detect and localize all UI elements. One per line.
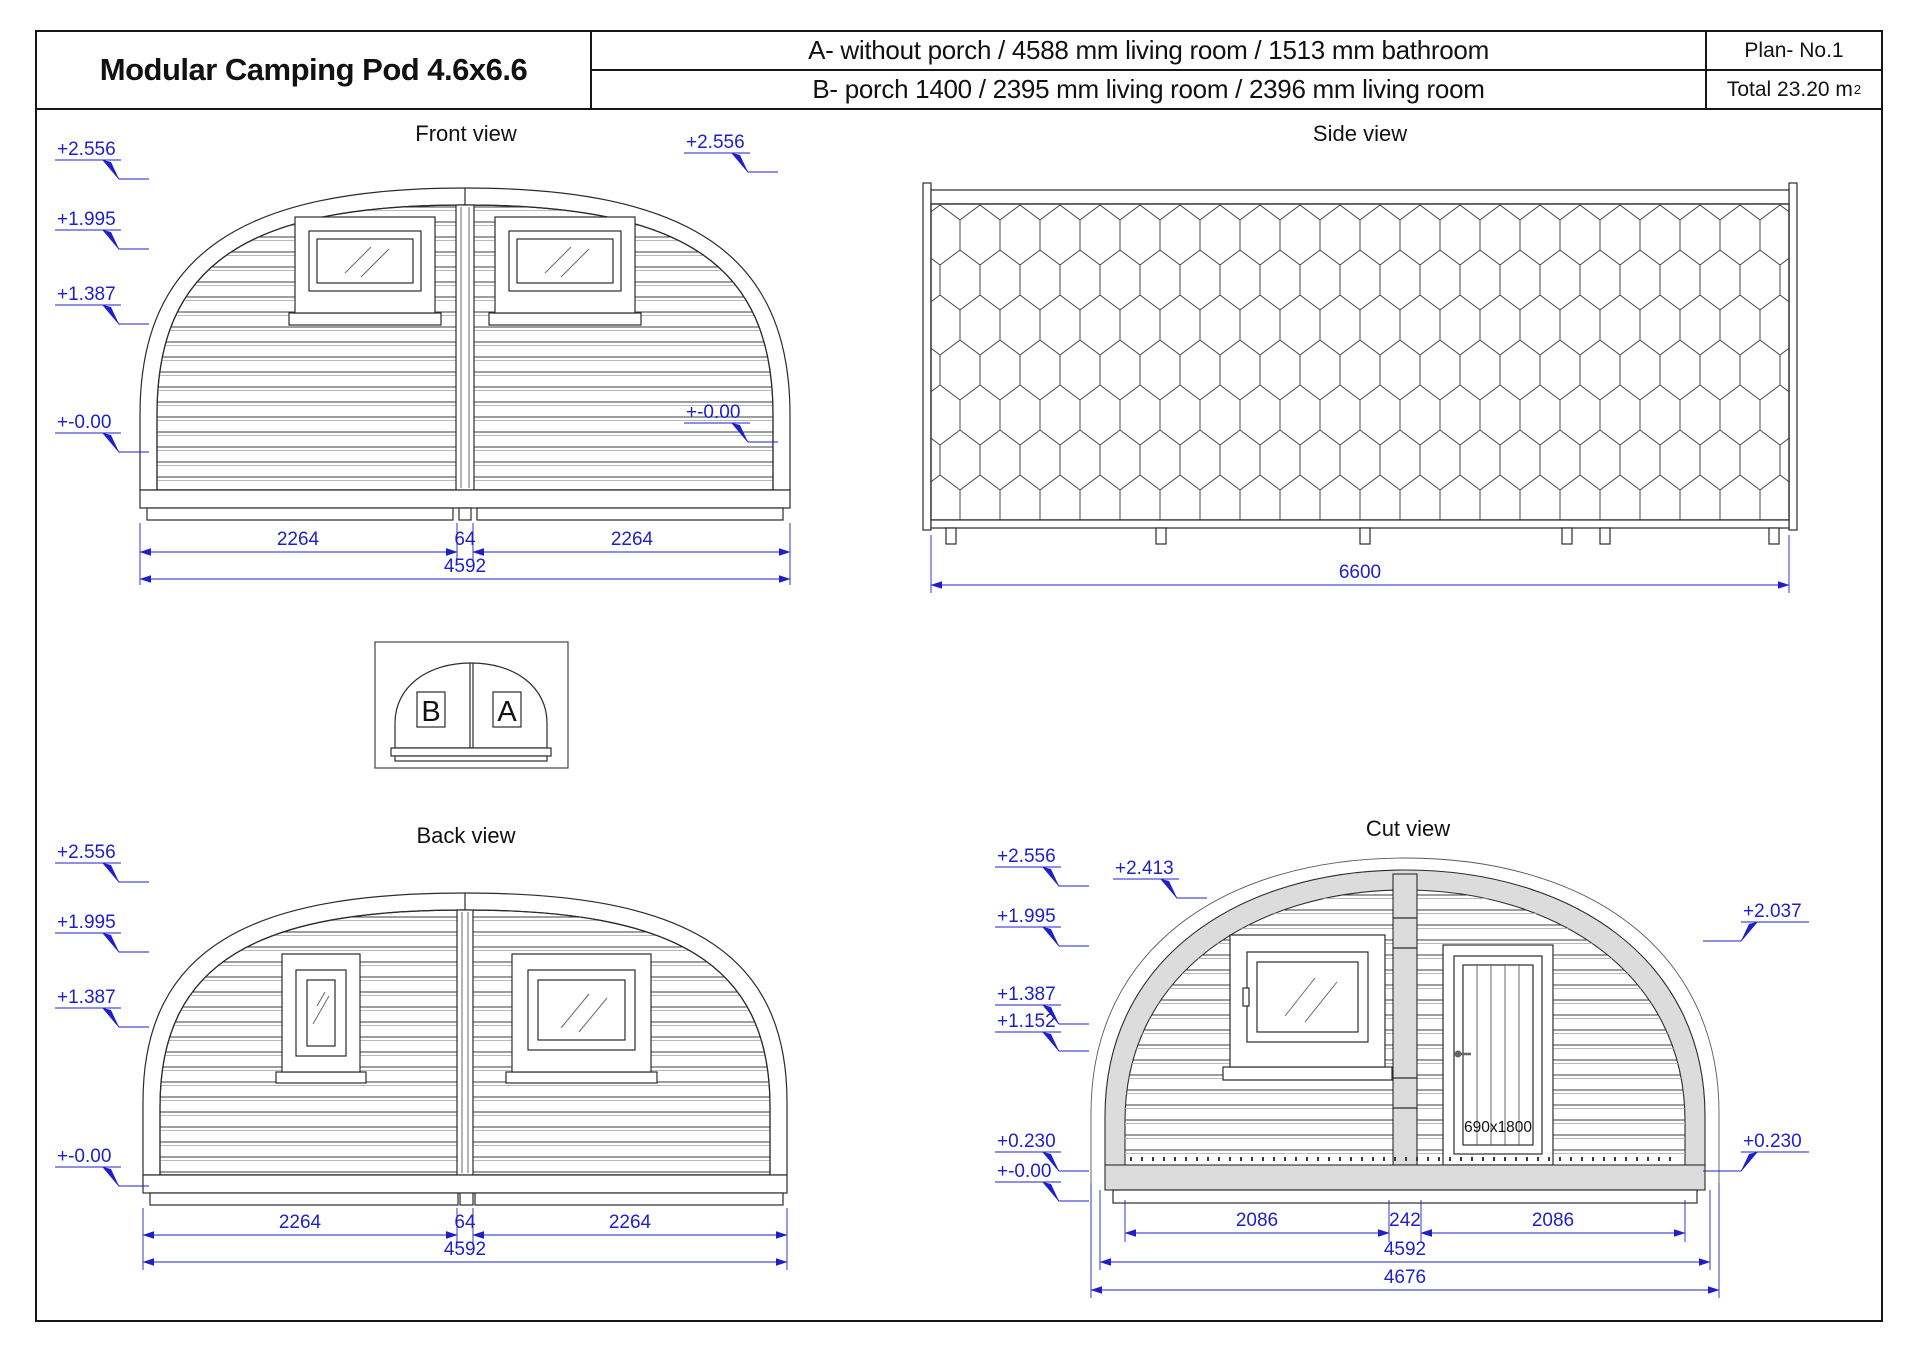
svg-text:+1.995: +1.995 [997,906,1056,927]
dim-label: 2086 [1236,1210,1278,1231]
svg-text:+2.556: +2.556 [997,846,1056,867]
elevation-marker: +2.037 [1703,901,1809,941]
back-skid-center [460,1193,473,1205]
total-area-sup: 2 [1854,82,1861,97]
dim-label: 4592 [444,1239,486,1260]
svg-text:+1.995: +1.995 [57,912,116,933]
front-skid-center [459,508,471,520]
cut-skid [1113,1190,1697,1203]
module-a-label: A [497,696,517,728]
svg-text:+1.152: +1.152 [997,1011,1056,1032]
side-foot [1562,528,1572,544]
back-view: Back view [45,810,825,1290]
dim-label: 4592 [1384,1239,1426,1260]
svg-text:+1.995: +1.995 [57,209,116,230]
svg-text:+1.387: +1.387 [57,284,116,305]
variant-a-description: A- without porch / 4588 mm living room /… [592,32,1705,69]
dim-label: 64 [454,529,476,550]
side-view-drawing [923,183,1797,544]
elevation-marker: +1.152 [995,1011,1089,1051]
svg-text:+1.387: +1.387 [57,987,116,1008]
side-foot [1600,528,1610,544]
door-size-label: 690x1800 [1464,1119,1532,1136]
front-view-title: Front view [415,121,517,146]
dim-label: 4676 [1384,1267,1426,1288]
front-window-left [289,217,441,325]
cut-window [1223,935,1392,1080]
back-center-divider [457,910,473,1175]
svg-text:+-0.00: +-0.00 [57,412,111,433]
back-window-right [506,954,657,1083]
dim-label: 2264 [277,529,320,550]
elevation-marker: +-0.00 [55,412,149,452]
page-title: Modular Camping Pod 4.6x6.6 [37,32,592,108]
shingle-roof [931,204,1789,520]
elevation-marker: +2.556 [55,842,149,882]
svg-text:+-0.00: +-0.00 [686,402,740,423]
cut-view: Cut view [985,818,1895,1323]
side-post-left [923,183,931,530]
title-block-row-a: A- without porch / 4588 mm living room /… [592,32,1881,71]
cut-door: 690x1800 [1443,945,1553,1165]
side-foot [946,528,956,544]
elevation-marker: +2.556 [995,846,1089,886]
svg-text:+-0.00: +-0.00 [997,1161,1051,1182]
elevation-marker: +-0.00 [995,1161,1089,1201]
module-b-label: B [421,696,440,728]
svg-text:+0.230: +0.230 [997,1131,1056,1152]
elevation-marker: +-0.00 [55,1146,149,1186]
back-window-left [276,954,366,1083]
svg-text:+2.037: +2.037 [1743,901,1802,922]
key-diagram: B A [370,635,580,785]
title-block: Modular Camping Pod 4.6x6.6 A- without p… [37,32,1881,110]
side-foot [1156,528,1166,544]
back-skid-right [475,1193,783,1205]
elevation-marker: +1.387 [55,987,149,1027]
elevation-marker: +1.995 [55,912,149,952]
elevation-marker: +2.413 [1113,858,1207,898]
total-area-text: Total 23.20 m [1727,78,1853,102]
svg-text:+1.387: +1.387 [997,984,1056,1005]
title-block-rows: A- without porch / 4588 mm living room /… [592,32,1881,108]
key-skid [395,756,547,761]
svg-text:+0.230: +0.230 [1743,1131,1802,1152]
front-skid-left [147,508,453,520]
elevation-marker: +2.556 [684,132,778,172]
cut-floor [1105,1165,1705,1190]
svg-text:+2.556: +2.556 [686,132,745,153]
cut-view-title: Cut view [1366,816,1450,841]
dim-label: 2086 [1532,1210,1574,1231]
svg-text:+-0.00: +-0.00 [57,1146,111,1167]
elevation-marker: +-0.00 [684,402,778,442]
title-block-row-b: B- porch 1400 / 2395 mm living room / 23… [592,71,1881,108]
cut-view-drawing: 690x1800 [1091,858,1719,1203]
side-foot [1360,528,1370,544]
side-post-right [1789,183,1797,530]
svg-text:+2.556: +2.556 [57,842,116,863]
side-fascia [931,190,1789,204]
key-base [391,748,551,756]
window-handle [1243,988,1249,1006]
elevation-marker: +1.995 [995,906,1089,946]
side-view-title: Side view [1313,121,1407,146]
side-base-strip [931,520,1789,528]
elevation-marker: +1.995 [55,209,149,249]
svg-text:+2.413: +2.413 [1115,858,1174,879]
elevation-marker: +2.556 [55,139,149,179]
cut-center-wall [1393,874,1417,1165]
front-window-right [489,217,641,325]
plan-number: Plan- No.1 [1705,32,1881,69]
back-view-title: Back view [416,823,515,848]
variant-b-description: B- porch 1400 / 2395 mm living room / 23… [592,71,1705,108]
back-view-drawing [143,893,787,1205]
dim-label: 6600 [1339,562,1381,583]
back-skid-left [150,1193,458,1205]
dim-label: 64 [454,1212,476,1233]
dim-label: 2264 [279,1212,322,1233]
svg-text:+2.556: +2.556 [57,139,116,160]
drawing-page: { "header": { "title": "Modular Camping … [0,0,1920,1357]
dim-label: 242 [1389,1210,1421,1231]
front-center-divider [456,205,474,490]
elevation-marker: +1.387 [55,284,149,324]
back-base-beam [143,1175,787,1193]
dim-label: 4592 [444,556,486,577]
total-area: Total 23.20 m2 [1705,71,1881,108]
dim-label: 2264 [609,1212,652,1233]
side-foot [1769,528,1779,544]
side-view: Side view +2.556 +-0.00 6600 [640,115,1885,605]
back-dimensions: 2264 64 2264 4592 [143,1208,787,1270]
